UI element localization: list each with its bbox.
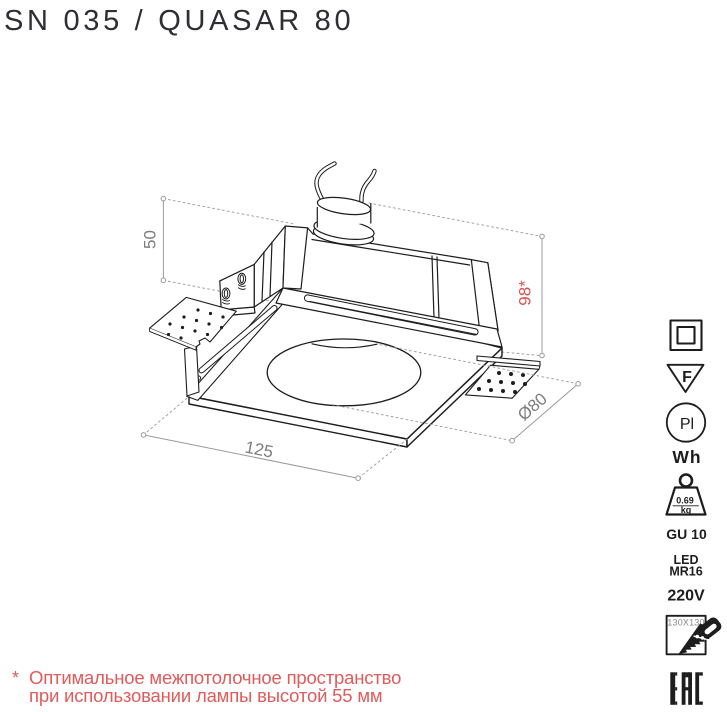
svg-text:F: F: [682, 369, 692, 386]
svg-text:GU 10: GU 10: [666, 526, 707, 542]
svg-text:98*: 98*: [516, 280, 535, 306]
svg-text:Wh: Wh: [672, 447, 701, 467]
svg-text:0.69: 0.69: [676, 496, 694, 506]
svg-text:MR16: MR16: [669, 565, 702, 579]
svg-text:50: 50: [141, 230, 160, 249]
svg-text:Ø80: Ø80: [514, 389, 551, 424]
svg-text:125: 125: [243, 437, 275, 461]
svg-text:kg: kg: [681, 505, 692, 515]
svg-text:Pl: Pl: [680, 416, 694, 433]
svg-text:220V: 220V: [667, 588, 705, 605]
